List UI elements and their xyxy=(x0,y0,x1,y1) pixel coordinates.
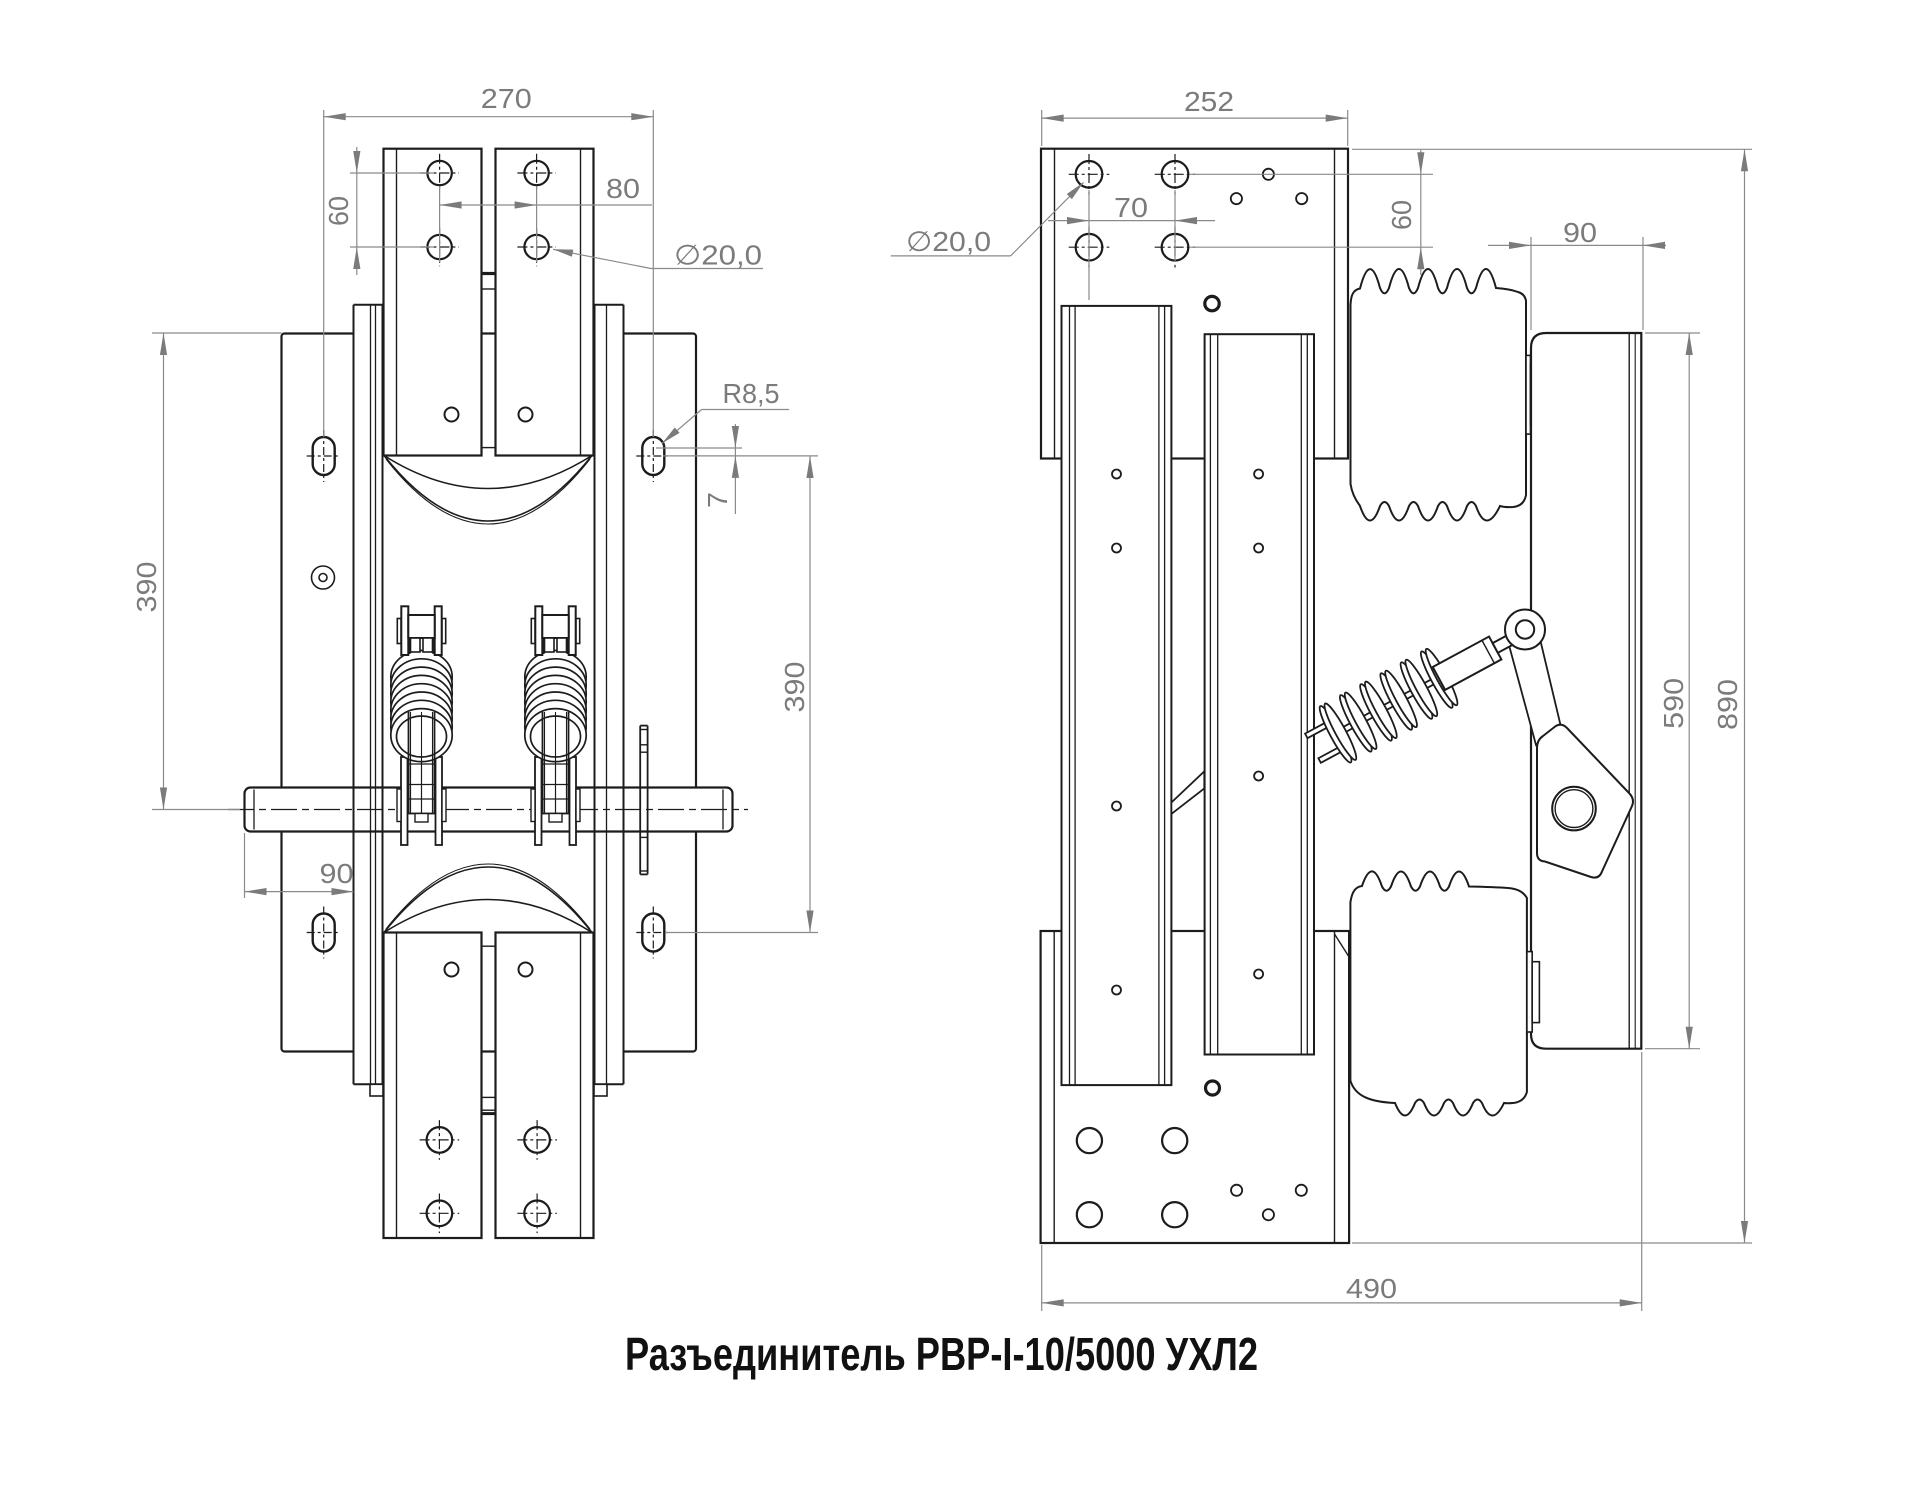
svg-text:70: 70 xyxy=(1114,192,1148,223)
svg-text:Разъединитель РВР-I-10/5000 УХ: Разъединитель РВР-I-10/5000 УХЛ2 xyxy=(625,1328,1258,1380)
svg-text:90: 90 xyxy=(1563,217,1597,248)
svg-text:590: 590 xyxy=(1658,678,1689,729)
svg-text:R8,5: R8,5 xyxy=(723,378,780,409)
svg-text:60: 60 xyxy=(323,196,354,226)
svg-text:890: 890 xyxy=(1712,679,1743,730)
svg-text:80: 80 xyxy=(606,173,640,204)
svg-text:∅20,0: ∅20,0 xyxy=(674,240,762,271)
svg-text:490: 490 xyxy=(1346,1273,1397,1304)
svg-text:90: 90 xyxy=(320,858,354,889)
svg-text:270: 270 xyxy=(481,83,532,114)
svg-text:60: 60 xyxy=(1386,200,1417,230)
svg-text:∅20,0: ∅20,0 xyxy=(906,226,991,257)
svg-text:390: 390 xyxy=(779,662,810,713)
svg-text:7: 7 xyxy=(702,492,733,508)
svg-text:390: 390 xyxy=(131,562,162,613)
svg-text:252: 252 xyxy=(1184,86,1234,117)
